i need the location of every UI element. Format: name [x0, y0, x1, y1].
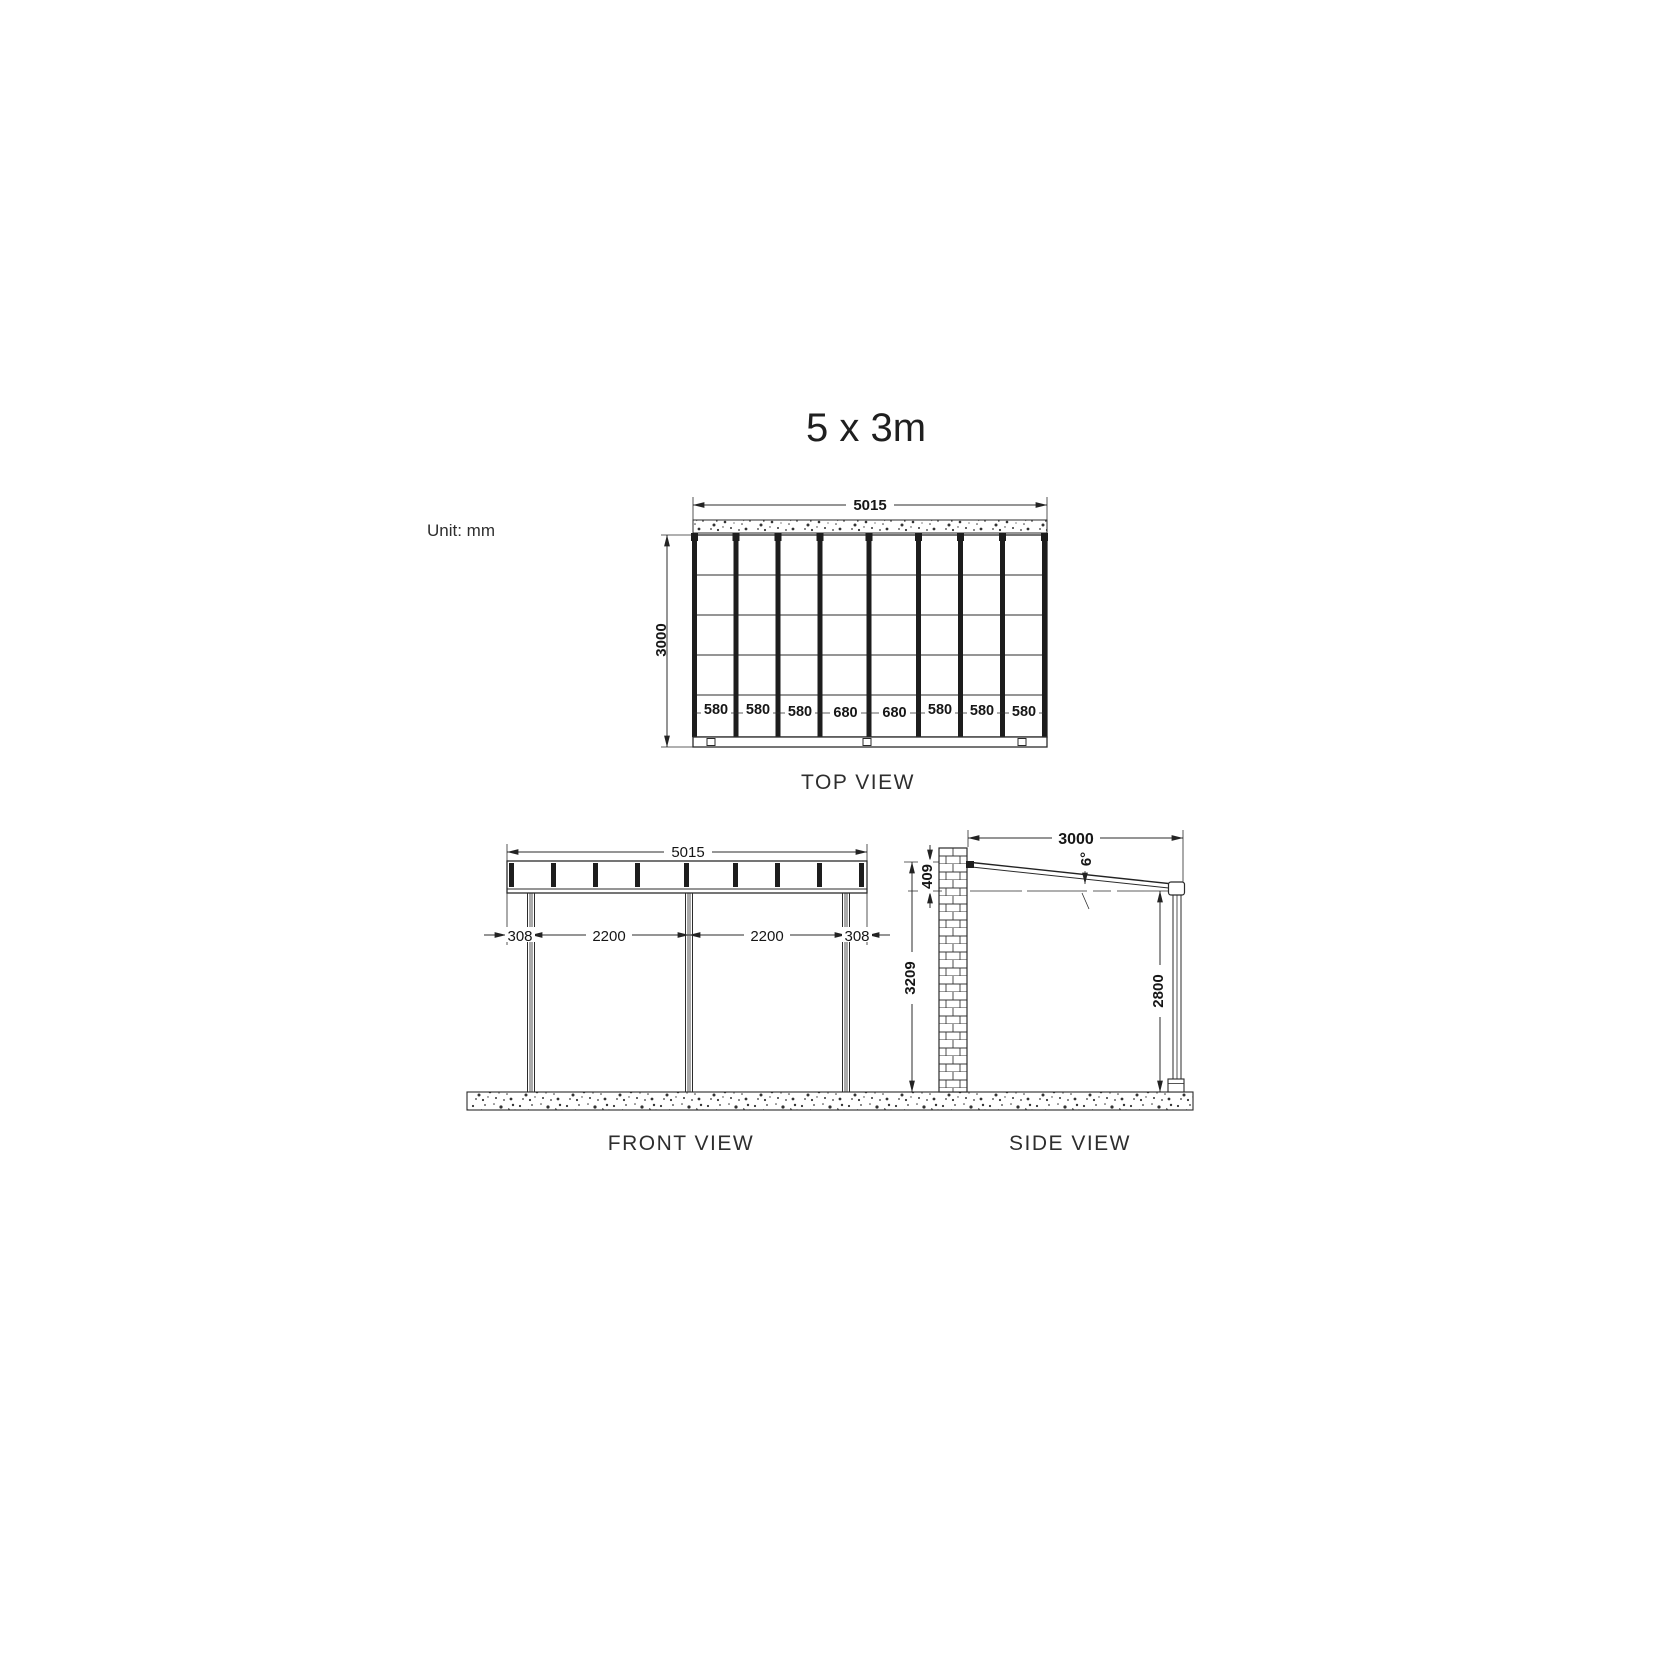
- top-post-1: [707, 739, 715, 746]
- top-post-3: [1018, 739, 1026, 746]
- bay-width-3: 580: [788, 704, 812, 720]
- top-post-2: [863, 739, 871, 746]
- bay-width-5: 680: [882, 705, 906, 721]
- top-roof-grid: 580 580 580 680 680 580 580 580: [691, 533, 1048, 747]
- bay-width-4: 680: [833, 705, 857, 721]
- side-roof-wall-bracket: [966, 861, 974, 868]
- front-left-offset-value: 308: [507, 928, 532, 945]
- side-brick-wall: [939, 848, 967, 1092]
- bay-width-1: 580: [704, 702, 728, 718]
- side-post: [1168, 882, 1185, 1092]
- top-view: 5015 58: [651, 497, 1048, 794]
- top-view-depth-dimension: 3000: [651, 535, 693, 747]
- front-span-right-value: 2200: [750, 928, 783, 945]
- front-posts: [528, 893, 850, 1092]
- side-depth-dimension: 3000: [968, 830, 1183, 884]
- top-view-label: TOP VIEW: [801, 771, 915, 794]
- front-view-label: FRONT VIEW: [608, 1132, 754, 1155]
- front-spacing-dimensions: 308 2200 2200 308: [484, 893, 890, 945]
- front-span-left-value: 2200: [592, 928, 625, 945]
- side-roof-angle: 6°: [1078, 847, 1095, 909]
- bay-width-2: 580: [746, 702, 770, 718]
- front-right-offset-value: 308: [844, 928, 869, 945]
- side-total-height-dimension: 3209: [900, 862, 919, 1092]
- bay-width-7: 580: [970, 703, 994, 719]
- side-post-foot: [1168, 1079, 1184, 1092]
- side-gutter: [1169, 882, 1185, 895]
- side-total-height-value: 3209: [902, 961, 919, 994]
- bay-width-8: 580: [1012, 704, 1036, 720]
- front-width-value: 5015: [671, 844, 704, 861]
- side-depth-value: 3000: [1058, 831, 1094, 848]
- front-post-left: [528, 893, 535, 1092]
- side-post-height-dimension: 2800: [1148, 891, 1167, 1092]
- front-post-right: [843, 893, 850, 1092]
- side-view-label: SIDE VIEW: [1009, 1132, 1131, 1155]
- front-view-width-dimension: 5015: [507, 844, 867, 861]
- bay-width-6: 580: [928, 702, 952, 718]
- top-view-width-dimension: 5015: [693, 497, 1047, 521]
- ground-slab: [467, 1092, 1193, 1110]
- side-rise-value: 409: [919, 864, 936, 889]
- side-post-height-value: 2800: [1150, 974, 1167, 1007]
- side-roof-slope: [966, 861, 1178, 889]
- unit-label: Unit: mm: [427, 521, 495, 540]
- front-header-beam: [507, 861, 867, 893]
- side-rise-dimension: 409: [904, 845, 942, 908]
- top-edge-beam: [693, 737, 1047, 747]
- top-wall-strip: [693, 520, 1047, 533]
- drawing-page: 5 x 3m Unit: mm 5015: [0, 0, 1676, 1676]
- page-title: 5 x 3m: [806, 406, 926, 450]
- technical-drawing-canvas: 5 x 3m Unit: mm 5015: [0, 0, 1676, 1676]
- top-width-value: 5015: [853, 497, 886, 514]
- side-roof-angle-value: 6°: [1078, 852, 1095, 866]
- front-post-center: [686, 893, 693, 1092]
- top-depth-value: 3000: [653, 623, 670, 656]
